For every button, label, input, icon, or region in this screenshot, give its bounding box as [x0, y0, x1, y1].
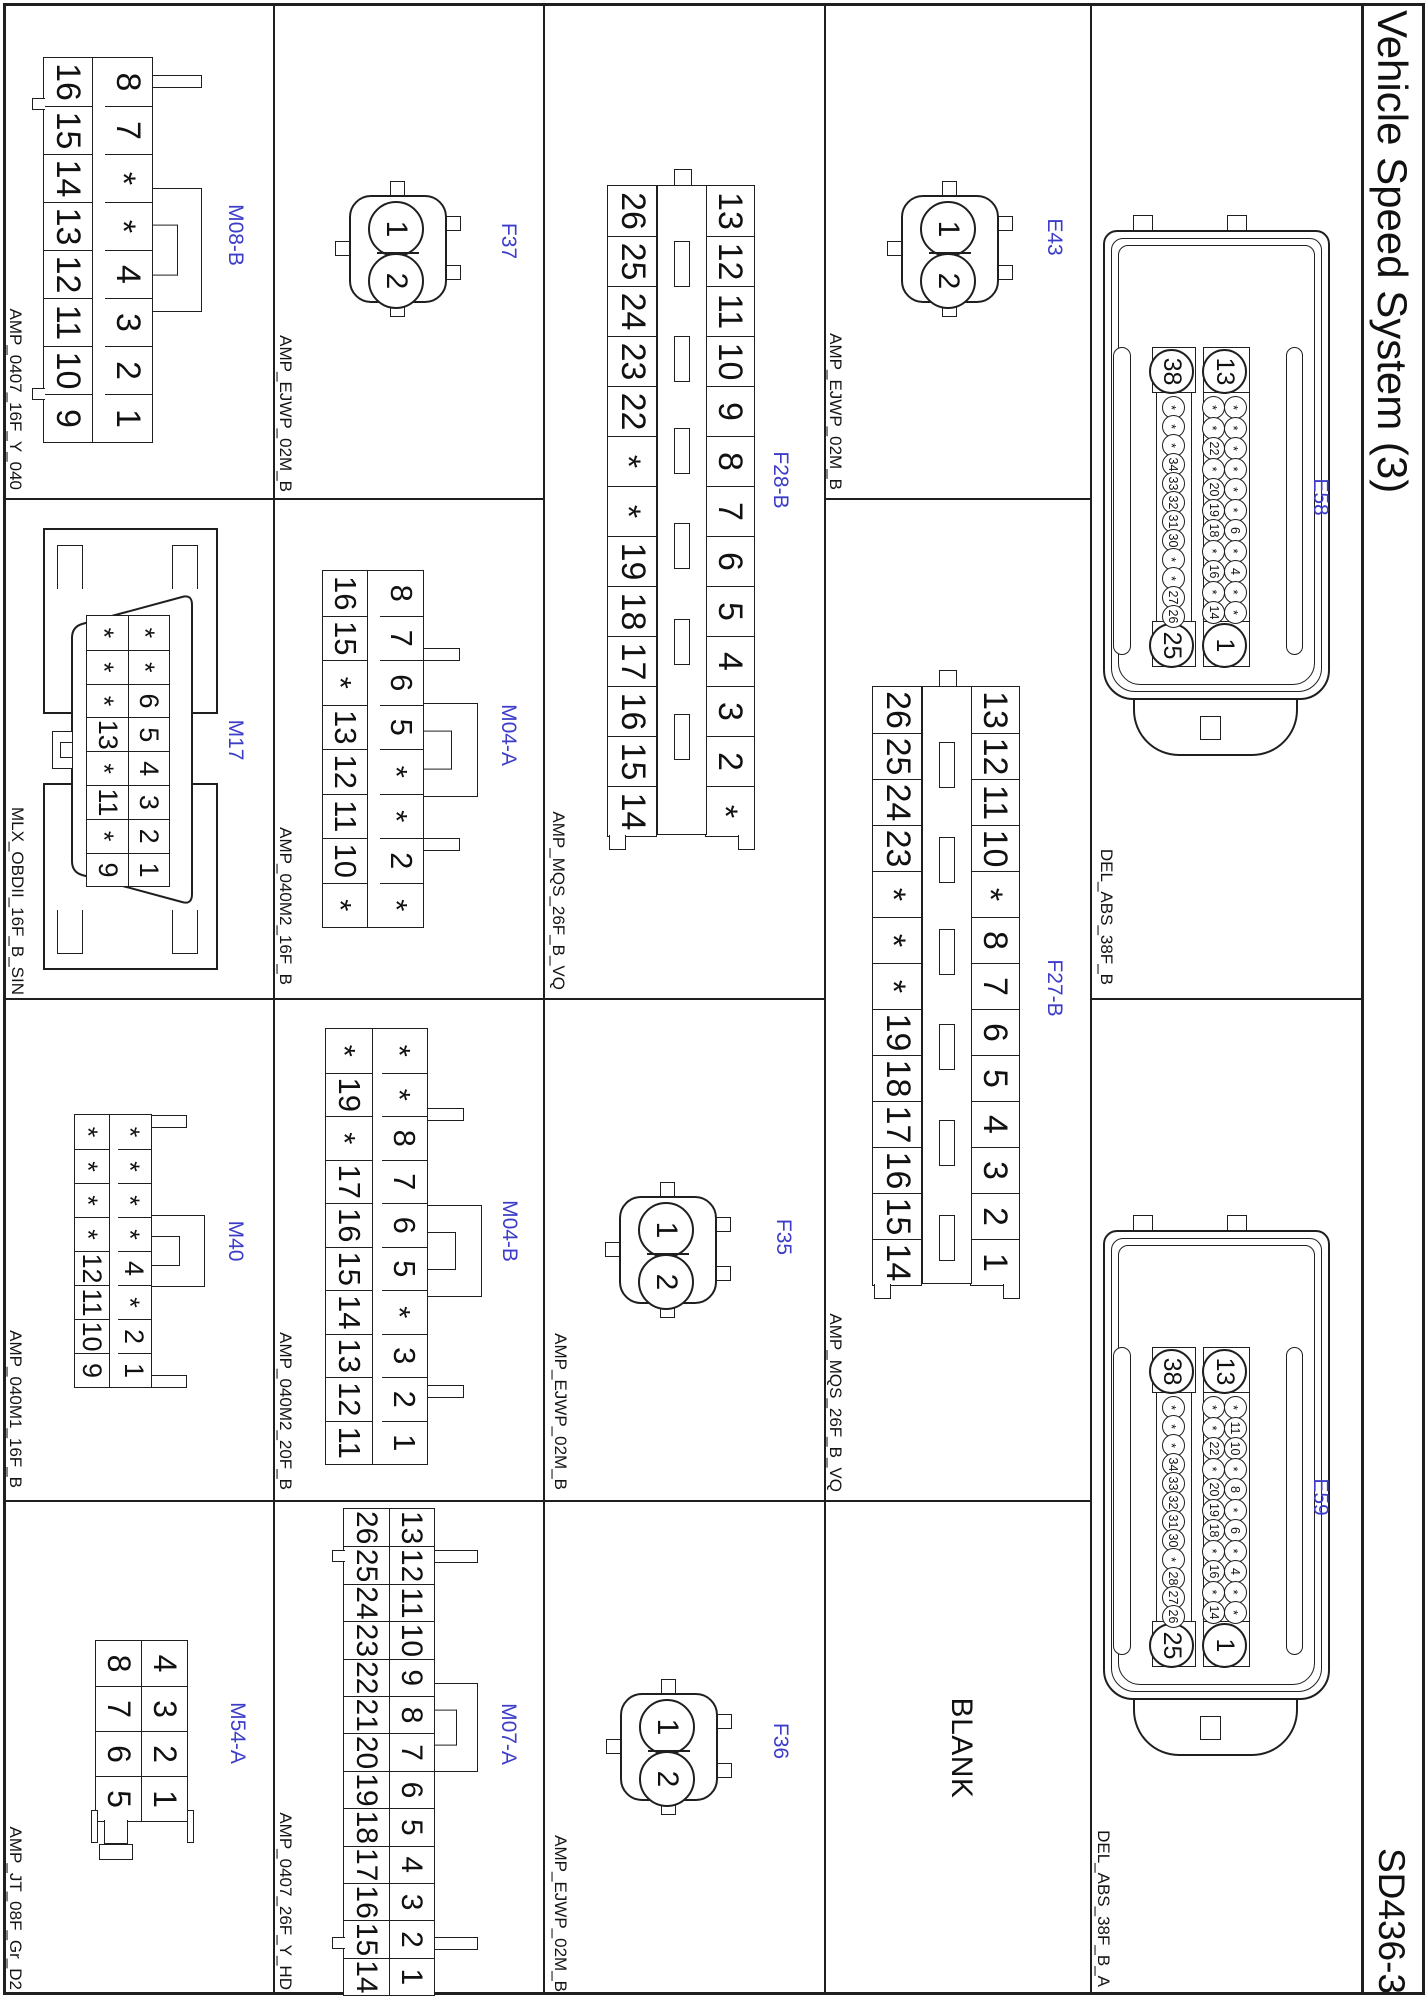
pin-cell: 13: [87, 717, 128, 751]
pin-cell: 5: [379, 705, 423, 750]
latch-notch: [427, 1232, 456, 1270]
pin-circle: *: [1224, 1601, 1247, 1624]
shell-tab: [887, 241, 902, 256]
pin-circle: *: [1224, 437, 1247, 460]
unused-pin-star: *: [88, 662, 119, 673]
pin-cell: *: [128, 650, 169, 684]
pin-circle: 1: [1202, 1623, 1247, 1668]
pin-cell: 1: [389, 1958, 434, 1995]
pin-circle: 4: [1224, 560, 1247, 583]
pin-cell: 10: [389, 1621, 434, 1658]
mount-tab: [153, 75, 202, 88]
unused-pin-star: *: [88, 831, 119, 842]
cap-notch: [1200, 1716, 1221, 1740]
pin-row: ***13*11*9: [86, 615, 129, 887]
pin-cell: *: [609, 436, 657, 486]
pin-cell: 17: [874, 1101, 922, 1147]
unused-pin-star: *: [1227, 590, 1241, 595]
pin-cell: 10: [706, 336, 754, 386]
pin-cell: 6: [96, 1731, 142, 1776]
pin-cell: 16: [323, 571, 367, 616]
connector-id-label: F27-B: [1042, 959, 1066, 1016]
pin-cell: 11: [326, 1421, 372, 1465]
pin-cell: 8: [381, 1116, 427, 1160]
pin-cell: 2: [706, 736, 754, 786]
pin-circle: 1: [638, 1202, 694, 1258]
unused-pin-star: *: [1227, 467, 1241, 472]
pin-cell: 21: [344, 1696, 389, 1733]
connector-id-label: M54-A: [225, 1702, 249, 1764]
mount-tab: [424, 838, 460, 851]
shell-tab: [716, 1217, 731, 1232]
pin-cell: *: [75, 1149, 109, 1183]
pin-cell: 22: [609, 386, 657, 436]
pin-cell: 25: [874, 733, 922, 779]
pin-cell: 19: [874, 1009, 922, 1055]
unused-pin-star: *: [1165, 1424, 1179, 1429]
grid-line: [826, 498, 1092, 500]
unused-pin-star: *: [1165, 405, 1179, 410]
pin-circle: 2: [639, 1751, 695, 1807]
mount-tab: [32, 98, 45, 110]
connector-id-label: M04-B: [497, 1200, 521, 1262]
pin-cell: 9: [389, 1659, 434, 1696]
pin-cell: 2: [389, 1920, 434, 1957]
pin-cell: *: [706, 786, 754, 836]
pin-cell: 14: [344, 1958, 389, 1995]
shell-tab: [446, 265, 461, 280]
unused-pin-star: *: [970, 888, 1009, 901]
pin-cell: *: [874, 917, 922, 963]
pin-cell: 1: [381, 1421, 427, 1465]
pin-cell: 5: [128, 717, 169, 751]
pin-cell: 16: [44, 58, 92, 106]
pin-cell: 5: [706, 586, 754, 636]
pin-cell: 2: [379, 838, 423, 883]
pin-cell: 22: [344, 1659, 389, 1696]
pin-row: 1312111098765432*: [705, 185, 755, 837]
pin-cell: 23: [874, 825, 922, 871]
unused-pin-star: *: [1205, 1467, 1219, 1472]
pin-cell: *: [104, 154, 152, 202]
unused-pin-star: *: [322, 677, 358, 689]
connector-part-label: AMP_EJWP_02M_B: [550, 1333, 570, 1490]
unused-pin-star: *: [1165, 557, 1179, 562]
pin-cell: 26: [874, 687, 922, 733]
pin-cell: *: [87, 684, 128, 718]
pin-cell: 23: [344, 1621, 389, 1658]
latch-notch: [151, 1236, 180, 1266]
seal-slot: [1113, 1347, 1131, 1655]
flange-arm: [172, 545, 198, 589]
latch-notch: [434, 1709, 457, 1746]
pin-circle: *: [1224, 601, 1247, 624]
unused-pin-star: *: [608, 455, 647, 468]
connector-part-label: MLX_OBDII_16F_B_SIN: [7, 807, 27, 995]
unused-pin-star: *: [114, 1297, 145, 1308]
pin-circle: 6: [1224, 1519, 1247, 1542]
pin-row: 4321: [141, 1640, 189, 1822]
unused-pin-star: *: [1227, 1405, 1241, 1410]
polarization-slot: [674, 428, 690, 474]
polarization-slot: [674, 619, 690, 665]
unused-pin-star: *: [873, 934, 912, 947]
pin-row: 8765**2*: [378, 570, 424, 928]
pin-cell: 26: [344, 1509, 389, 1546]
pin-row: 2625242322**191817161514: [608, 185, 658, 837]
pin-cell: 4: [389, 1846, 434, 1883]
pin-cell: 1: [117, 1353, 151, 1387]
unused-pin-star: *: [114, 1195, 145, 1206]
pin-cell: 12: [44, 250, 92, 298]
pin-row-gap: [373, 1028, 382, 1465]
pin-cell: 18: [874, 1055, 922, 1101]
connector-part-label: AMP_EJWP_02M_B: [550, 1835, 570, 1992]
shell-tab: [717, 1763, 732, 1778]
unused-pin-star: *: [1227, 487, 1241, 492]
pin-cell: *: [117, 1115, 151, 1149]
unused-pin-star: *: [1205, 405, 1219, 410]
connector-part-label: AMP_EJWP_02M_B: [825, 333, 845, 490]
connector-id-label: E43: [1042, 218, 1066, 255]
mount-foot: [610, 835, 627, 850]
pin-circle: 1: [1202, 623, 1247, 668]
pin-divider: [377, 252, 419, 254]
mount-tab: [32, 388, 45, 400]
grid-line: [1422, 3, 1425, 1995]
pin-divider: [647, 1253, 689, 1255]
mount-rail: [91, 1810, 98, 1843]
unused-pin-star: *: [129, 662, 160, 673]
latch-notch: [423, 731, 452, 770]
pin-circle: 8: [1224, 1478, 1247, 1501]
grid-line: [3, 1992, 1425, 1995]
pin-cell: 13: [44, 202, 92, 250]
polarization-slot: [674, 714, 690, 760]
latch-tab: [427, 1205, 482, 1297]
pin-circle: 13: [1202, 1349, 1247, 1394]
polarization-slot: [939, 1120, 955, 1166]
seal-slot: [1113, 347, 1131, 655]
unused-pin-star: *: [114, 1127, 145, 1138]
connector-id-label: F37: [496, 223, 520, 259]
shell-tab: [390, 181, 405, 196]
unused-pin-star: *: [1205, 590, 1219, 595]
pin-circle: 13: [1202, 349, 1247, 394]
pin-cell: 2: [104, 346, 152, 394]
unused-pin-star: *: [381, 1306, 417, 1318]
unused-pin-star: *: [1227, 1610, 1241, 1615]
connector-id-label: F28-B: [768, 451, 792, 508]
wiring-diagram-sheet: Vehicle Speed System (3) SD436-3 BLANK 1…: [0, 0, 1428, 2000]
connector-id-label: M08-B: [223, 204, 247, 266]
pin-cell: 2: [381, 1377, 427, 1421]
latch-tab: [151, 1215, 205, 1287]
shell-tab: [446, 216, 461, 231]
shell-tab: [661, 1679, 676, 1694]
pin-cell: 7: [381, 1160, 427, 1204]
unused-pin-star: *: [114, 1161, 145, 1172]
pin-cell: 14: [326, 1290, 372, 1334]
shell-tab: [335, 241, 350, 256]
mount-foot-bar: [100, 1844, 134, 1860]
pin-cell: 7: [389, 1733, 434, 1770]
unused-pin-star: *: [381, 1045, 417, 1057]
pin-cell: 13: [971, 687, 1019, 733]
pin-cell: 3: [706, 686, 754, 736]
unused-pin-star: *: [1165, 443, 1179, 448]
pin-cell: *: [104, 202, 152, 250]
polarization-slot: [939, 837, 955, 883]
pin-cell: 9: [87, 853, 128, 887]
pin-cell: 15: [874, 1193, 922, 1239]
connector-part-label: AMP_MQS_26F_B_VQ: [548, 811, 568, 990]
pin-cell: 7: [706, 486, 754, 536]
unused-pin-star: *: [72, 1127, 103, 1138]
pin-cell: 18: [344, 1808, 389, 1845]
unused-pin-star: *: [88, 763, 119, 774]
latch-tab: [423, 703, 478, 797]
connector-part-label: DEL_ABS_38F_B_A: [1093, 1830, 1113, 1987]
mount-rail: [187, 1810, 194, 1843]
pin-cell: 5: [389, 1808, 434, 1845]
unused-pin-star: *: [72, 1195, 103, 1206]
grid-line: [3, 498, 545, 500]
unused-pin-star: *: [1227, 405, 1241, 410]
pin-cell: 7: [971, 963, 1019, 1009]
pin-cell: 20: [344, 1733, 389, 1770]
unused-pin-star: *: [1205, 1405, 1219, 1410]
mount-foot: [1003, 1284, 1020, 1299]
pin-row: **8765*321: [380, 1028, 428, 1465]
pin-cell: 3: [971, 1147, 1019, 1193]
mount-tab: [424, 648, 460, 661]
pin-cell: 15: [609, 736, 657, 786]
pin-cell: 9: [75, 1353, 109, 1387]
pin-cell: 2: [971, 1193, 1019, 1239]
pin-cell: *: [75, 1183, 109, 1217]
unused-pin-star: *: [873, 980, 912, 993]
pin-cell: 3: [104, 298, 152, 346]
pin-circle: 1: [639, 1699, 695, 1755]
pin-cell: 14: [44, 154, 92, 202]
pin-row-gap: [110, 1114, 118, 1388]
pin-cell: 6: [389, 1771, 434, 1808]
pin-cell: 19: [344, 1771, 389, 1808]
pin-cell: 17: [326, 1160, 372, 1204]
unused-pin-star: *: [1165, 1557, 1179, 1562]
pin-cell: *: [117, 1183, 151, 1217]
pin-row: **654321: [127, 615, 170, 887]
grid-line: [3, 998, 826, 1000]
mount-foot-stem: [105, 1820, 129, 1844]
pin-cell: 19: [326, 1073, 372, 1117]
unused-pin-star: *: [72, 1161, 103, 1172]
pin-cell: *: [87, 616, 128, 650]
pin-cell: 11: [87, 785, 128, 819]
latch-tab: [152, 188, 202, 312]
unused-pin-star: *: [1205, 1590, 1219, 1595]
connector-part-label: DEL_ABS_38F_B: [1096, 849, 1116, 985]
keying-tab: [674, 169, 692, 185]
unused-pin-star: *: [72, 1229, 103, 1240]
pin-cell: *: [75, 1217, 109, 1251]
connector-part-label: AMP_040M2_20F_B: [275, 1332, 295, 1490]
pin-cell: 11: [75, 1285, 109, 1319]
pin-cell: 16: [344, 1883, 389, 1920]
pin-cell: 1: [128, 853, 169, 887]
pin-cell: 8: [379, 571, 423, 616]
pin-cell: 12: [706, 236, 754, 286]
pin-cell: 15: [344, 1920, 389, 1957]
pin-cell: *: [971, 871, 1019, 917]
pin-circle: 2: [638, 1254, 694, 1310]
unused-pin-star: *: [1227, 549, 1241, 554]
pin-row: 13121110*87654321: [970, 686, 1020, 1286]
pin-cell: 2: [128, 819, 169, 853]
pin-cell: 2: [142, 1731, 188, 1776]
pin-cell: 10: [971, 825, 1019, 871]
pin-circle: 10: [1224, 1437, 1247, 1460]
pin-cell: 9: [706, 386, 754, 436]
unused-pin-star: *: [1205, 1549, 1219, 1554]
pin-divider: [929, 252, 971, 254]
pin-cell: 15: [326, 1247, 372, 1291]
pin-cell: 15: [44, 106, 92, 154]
mount-tab: [428, 1385, 464, 1398]
pin-cell: 4: [706, 636, 754, 686]
pin-cell: *: [87, 751, 128, 785]
connector-part-label: AMP_040M1_16F_B: [5, 1330, 25, 1488]
connector-id-label: M07-A: [496, 1703, 520, 1765]
pin-cell: 25: [609, 236, 657, 286]
pin-cell: 11: [971, 779, 1019, 825]
blank-cell-label: BLANK: [944, 1698, 978, 1799]
pin-cell: *: [323, 883, 367, 928]
pin-cell: 16: [874, 1147, 922, 1193]
pin-cell: *: [87, 819, 128, 853]
pin-cell: 10: [75, 1319, 109, 1353]
pin-cell: 12: [323, 749, 367, 794]
pin-cell: 6: [379, 660, 423, 705]
pin-cell: 16: [326, 1203, 372, 1247]
pin-cell: 5: [381, 1247, 427, 1291]
keying-tab: [939, 670, 957, 686]
grid-line: [3, 3, 1425, 6]
pin-row-gap: [93, 57, 105, 443]
pin-cell: 13: [323, 705, 367, 750]
unused-pin-star: *: [1205, 1426, 1219, 1431]
unused-pin-star: *: [873, 888, 912, 901]
pin-row-gap: [368, 570, 380, 928]
flange-arm: [57, 910, 83, 954]
pin-cell: 24: [609, 286, 657, 336]
latch-tab: [434, 1683, 478, 1772]
pin-cell: 24: [344, 1584, 389, 1621]
pin-cell: 1: [142, 1776, 188, 1821]
shell-tab: [716, 1266, 731, 1281]
pin-cell: *: [326, 1116, 372, 1160]
unused-pin-star: *: [1205, 549, 1219, 554]
polarization-slot: [939, 929, 955, 975]
connector-id-label: F36: [768, 1723, 792, 1759]
pin-cell: 6: [381, 1203, 427, 1247]
pin-circle: 4: [1224, 1560, 1247, 1583]
pin-cell: 17: [609, 636, 657, 686]
pin-cell: 14: [874, 1239, 922, 1285]
pin-cell: 26: [609, 186, 657, 236]
pin-cell: 5: [96, 1776, 142, 1821]
unused-pin-star: *: [1165, 1405, 1179, 1410]
pin-cell: 14: [609, 786, 657, 836]
polarization-slot: [674, 241, 690, 287]
unused-pin-star: *: [1227, 446, 1241, 451]
mount-foot: [875, 1284, 892, 1299]
polarization-slot: [939, 742, 955, 788]
pin-cell: 4: [117, 1251, 151, 1285]
unused-pin-star: *: [1227, 426, 1241, 431]
pin-cell: 12: [971, 733, 1019, 779]
pin-circle: 2: [368, 253, 424, 309]
pin-cell: *: [117, 1149, 151, 1183]
pin-cell: 10: [44, 346, 92, 394]
pin-cell: 1: [104, 394, 152, 442]
connector-id-label: E59: [1308, 1478, 1332, 1515]
pin-row: 87**4321: [103, 57, 153, 443]
pin-cell: 12: [389, 1546, 434, 1583]
pin-row: 1615*13121110*: [322, 570, 368, 928]
mount-tab: [152, 1375, 187, 1388]
pin-row: ****4*21: [116, 1114, 152, 1388]
unused-pin-star: *: [1165, 424, 1179, 429]
document-number: SD436-3: [1370, 1848, 1412, 1994]
pin-cell: *: [323, 660, 367, 705]
pin-row: ****1211109: [74, 1114, 110, 1388]
pin-cell: *: [128, 616, 169, 650]
grid-line: [1092, 998, 1362, 1000]
shell-tab: [998, 265, 1013, 280]
pin-cell: *: [874, 963, 922, 1009]
flange-arm: [57, 545, 83, 589]
pin-cell: 9: [44, 394, 92, 442]
shell-tab: [942, 181, 957, 196]
unused-pin-star: *: [608, 505, 647, 518]
unused-pin-star: *: [1165, 1443, 1179, 1448]
unused-pin-star: *: [103, 220, 142, 233]
pin-cell: *: [117, 1217, 151, 1251]
pin-cell: 3: [128, 785, 169, 819]
grid-line: [3, 1500, 1092, 1502]
pin-cell: 8: [706, 436, 754, 486]
unused-pin-star: *: [326, 1132, 362, 1144]
pin-cell: 6: [971, 1009, 1019, 1055]
pin-circle: 26: [1162, 1605, 1185, 1628]
unused-pin-star: *: [326, 1045, 362, 1057]
pin-cell: 11: [323, 794, 367, 839]
connector-id-label: F35: [771, 1219, 795, 1255]
pin-cell: *: [381, 1073, 427, 1117]
unused-pin-star: *: [1205, 426, 1219, 431]
connector-part-label: AMP_JT_08F_Gr_D2: [5, 1827, 25, 1990]
pin-cell: 12: [326, 1377, 372, 1421]
connector-part-label: AMP_0407_26F_Y_HD: [275, 1812, 295, 1990]
unused-pin-star: *: [378, 899, 414, 911]
pin-row: 8765: [95, 1640, 143, 1822]
unused-pin-star: *: [1165, 576, 1179, 581]
seal-slot: [1286, 347, 1303, 655]
pin-cell: 8: [389, 1696, 434, 1733]
polarization-slot: [674, 523, 690, 569]
